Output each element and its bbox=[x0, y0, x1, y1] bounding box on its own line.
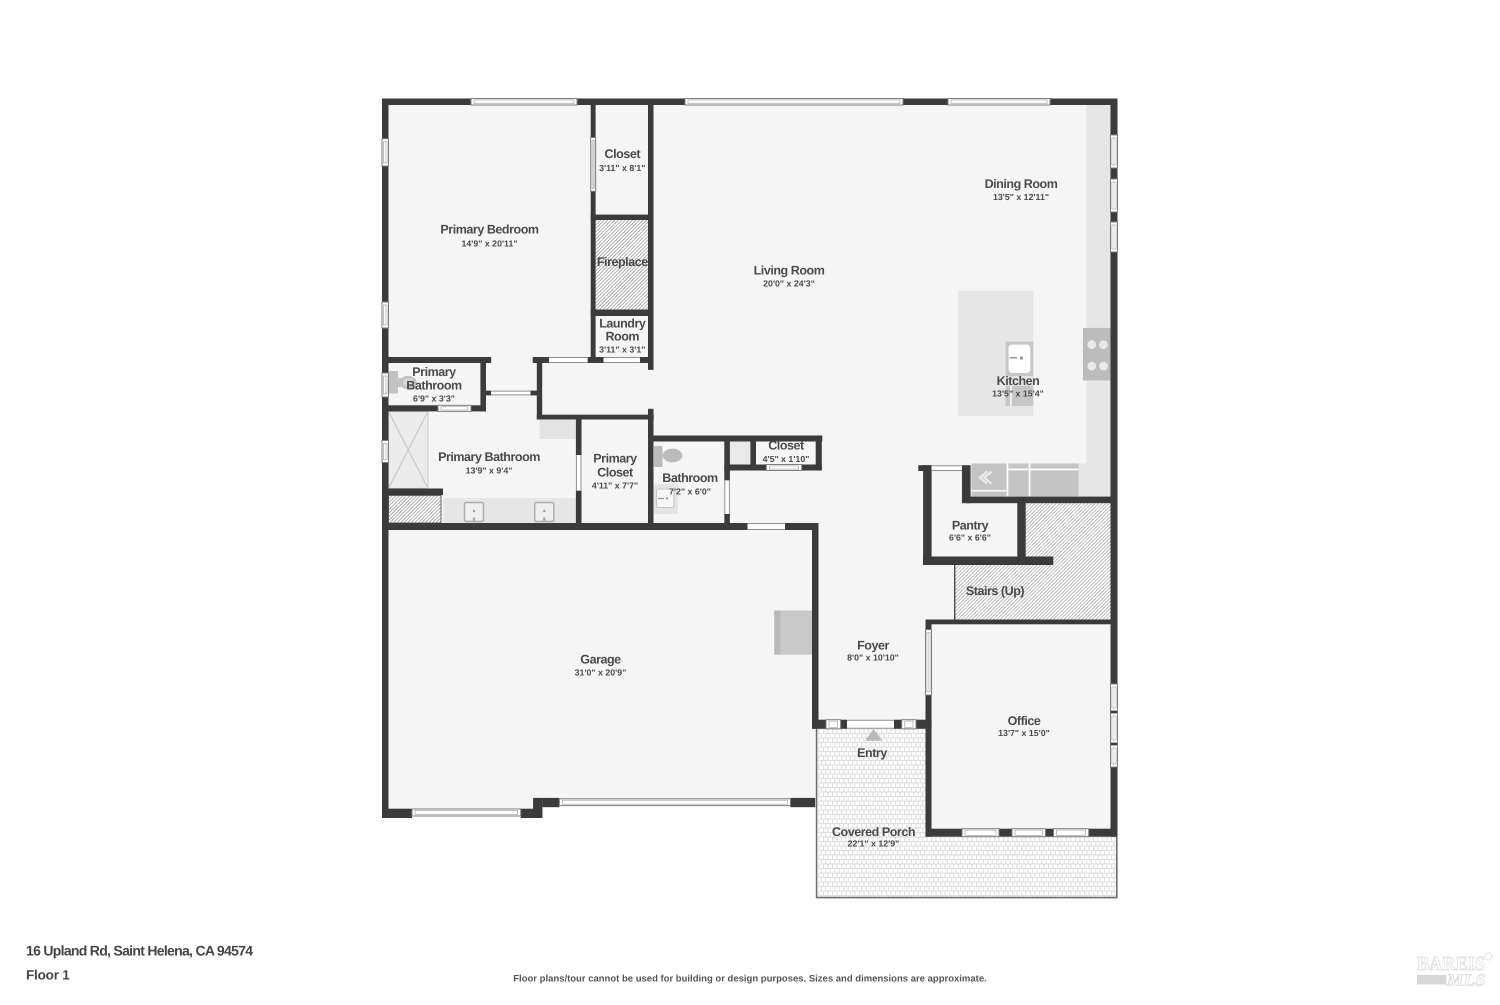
svg-text:Floor 1: Floor 1 bbox=[26, 968, 70, 983]
svg-text:Bathroom: Bathroom bbox=[406, 379, 462, 393]
svg-text:Foyer: Foyer bbox=[857, 639, 889, 653]
svg-text:Primary: Primary bbox=[593, 452, 637, 466]
svg-text:Covered Porch: Covered Porch bbox=[832, 825, 915, 839]
svg-text:Primary Bathroom: Primary Bathroom bbox=[438, 450, 540, 464]
svg-text:Entry: Entry bbox=[857, 746, 887, 760]
svg-text:3'11" x 3'1": 3'11" x 3'1" bbox=[599, 345, 645, 355]
svg-text:Room: Room bbox=[605, 330, 639, 344]
svg-text:4'5" x 1'10": 4'5" x 1'10" bbox=[763, 454, 810, 464]
svg-text:6'9" x 3'3": 6'9" x 3'3" bbox=[413, 394, 455, 404]
svg-text:Laundry: Laundry bbox=[599, 317, 646, 331]
svg-text:Floor plans/tour cannot be use: Floor plans/tour cannot be used for buil… bbox=[513, 974, 987, 985]
svg-text:Dining Room: Dining Room bbox=[985, 177, 1058, 191]
svg-text:Fireplace: Fireplace bbox=[597, 255, 648, 269]
svg-text:7'2" x 6'0": 7'2" x 6'0" bbox=[669, 487, 711, 497]
svg-text:4'11" x 7'7": 4'11" x 7'7" bbox=[592, 481, 638, 491]
svg-text:13'9" x 9'4": 13'9" x 9'4" bbox=[466, 466, 513, 476]
svg-text:Closet: Closet bbox=[768, 439, 805, 453]
svg-text:Stairs (Up): Stairs (Up) bbox=[966, 584, 1025, 598]
svg-text:13'5" x 12'11": 13'5" x 12'11" bbox=[993, 192, 1049, 202]
svg-text:31'0" x 20'9": 31'0" x 20'9" bbox=[575, 668, 627, 678]
svg-text:20'0" x 24'3": 20'0" x 24'3" bbox=[763, 279, 815, 289]
svg-text:8'0" x 10'10": 8'0" x 10'10" bbox=[847, 653, 899, 663]
svg-text:16 Upland Rd, Saint Helena, CA: 16 Upland Rd, Saint Helena, CA 94574 bbox=[26, 943, 253, 959]
svg-text:Office: Office bbox=[1008, 714, 1041, 728]
svg-text:13'5" x 15'4": 13'5" x 15'4" bbox=[992, 389, 1044, 399]
svg-text:14'9" x 20'11": 14'9" x 20'11" bbox=[461, 239, 517, 249]
svg-text:6'6" x 6'6": 6'6" x 6'6" bbox=[949, 533, 991, 543]
svg-text:Closet: Closet bbox=[597, 466, 634, 480]
svg-text:Closet: Closet bbox=[605, 147, 642, 161]
svg-text:Bathroom: Bathroom bbox=[662, 471, 718, 485]
svg-text:3'11" x 8'1": 3'11" x 8'1" bbox=[599, 163, 645, 173]
svg-text:13'7" x 15'0": 13'7" x 15'0" bbox=[998, 728, 1050, 738]
svg-text:Kitchen: Kitchen bbox=[997, 374, 1040, 388]
svg-text:Pantry: Pantry bbox=[952, 519, 989, 533]
svg-text:22'1" x 12'9": 22'1" x 12'9" bbox=[848, 839, 900, 849]
svg-text:Garage: Garage bbox=[580, 653, 621, 667]
svg-text:MLS: MLS bbox=[1445, 971, 1485, 990]
svg-text:Living Room: Living Room bbox=[754, 264, 825, 278]
svg-text:Primary: Primary bbox=[412, 365, 456, 379]
svg-text:Primary Bedroom: Primary Bedroom bbox=[440, 223, 538, 237]
